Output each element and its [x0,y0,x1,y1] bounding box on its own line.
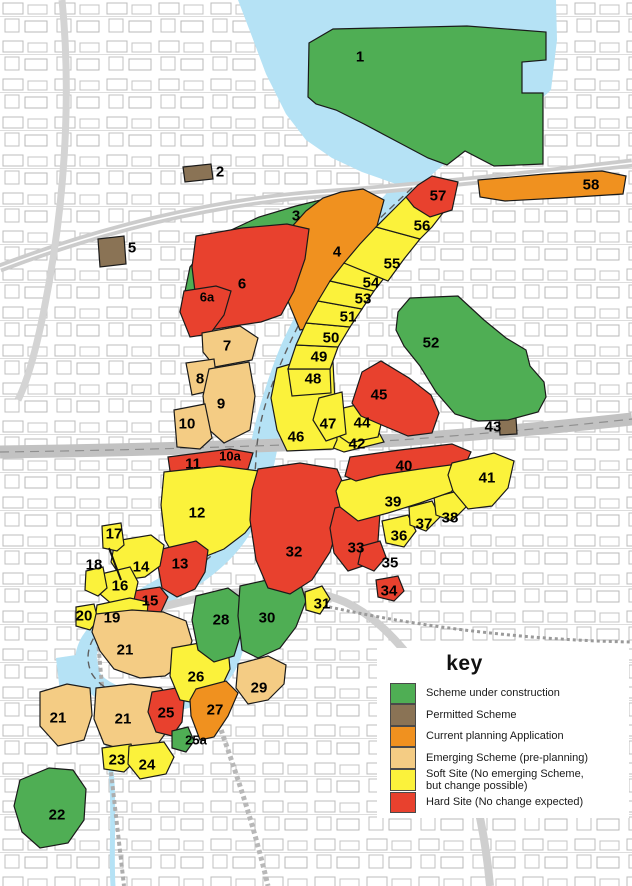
site-label-21: 21 [50,710,67,727]
site-label-4: 4 [333,244,342,261]
site-label-44: 44 [354,415,371,432]
site-label-43: 43 [485,419,502,436]
site-label-5: 5 [128,240,136,257]
site-label-45: 45 [371,387,388,404]
site-label-40: 40 [396,458,413,475]
key-swatch-hard [390,792,416,814]
site-label-6: 6 [238,276,246,293]
key-label-permitted: Permitted Scheme [426,710,516,722]
key-label-current-application: Current planning Application [426,731,564,743]
site-label-42: 42 [349,436,366,453]
site-label-49: 49 [311,349,328,366]
key-label-hard: Hard Site (No change expected) [426,797,583,809]
site-label-53: 53 [355,291,372,308]
site-label-2: 2 [216,164,224,181]
site-label-29: 29 [251,680,268,697]
site-label-21: 21 [117,642,134,659]
site-label-8: 8 [196,371,204,388]
key-item-soft: Soft Site (No emerging Scheme,but change… [390,769,629,792]
key-item-under-construction: Scheme under construction [390,683,629,705]
site-label-51: 51 [340,309,357,326]
site-region-5 [98,236,126,267]
site-label-28: 28 [213,612,230,629]
site-label-3: 3 [292,208,300,225]
key-label-under-construction: Scheme under construction [426,688,560,700]
site-label-1: 1 [356,49,364,66]
site-label-50: 50 [323,330,340,347]
site-label-14: 14 [133,559,150,576]
site-label-21: 21 [115,711,132,728]
site-label-48: 48 [305,371,322,388]
site-label-31: 31 [314,596,331,613]
site-label-30: 30 [259,610,276,627]
planning-map: 1234566a7891010a111213141516171819202121… [0,0,632,886]
key-label-line: Current planning Application [426,731,564,743]
site-label-52: 52 [423,335,440,352]
site-label-39: 39 [385,494,402,511]
site-label-19: 19 [104,610,121,627]
site-label-37: 37 [416,516,433,533]
key-item-emerging: Emerging Scheme (pre-planning) [390,748,629,770]
site-label-18: 18 [86,557,103,574]
key-item-hard: Hard Site (No change expected) [390,792,629,814]
key-label-line: Scheme under construction [426,688,560,700]
site-label-10: 10 [179,416,196,433]
site-label-32: 32 [286,544,303,561]
site-label-25: 25 [158,705,175,722]
map-key: key Scheme under constructionPermitted S… [377,648,629,818]
site-label-17: 17 [106,526,123,543]
key-label-line: Soft Site (No emerging Scheme, [426,769,584,781]
site-label-55: 55 [384,256,401,273]
site-label-22: 22 [49,807,66,824]
site-region-2 [183,164,213,182]
key-swatch-current-application [390,726,416,748]
site-label-25a: 25a [185,733,207,748]
key-label-line: but change possible) [426,781,584,793]
key-label-emerging: Emerging Scheme (pre-planning) [426,753,588,765]
key-label-line: Permitted Scheme [426,710,516,722]
site-label-41: 41 [479,470,496,487]
site-label-7: 7 [223,338,231,355]
key-items: Scheme under constructionPermitted Schem… [390,683,629,814]
key-label-line: Emerging Scheme (pre-planning) [426,753,588,765]
site-label-6a: 6a [200,290,215,305]
key-item-permitted: Permitted Scheme [390,705,629,727]
site-label-35: 35 [382,555,399,572]
site-label-12: 12 [189,505,206,522]
site-label-15: 15 [142,593,159,610]
site-label-36: 36 [391,528,408,545]
key-swatch-under-construction [390,683,416,705]
site-label-10a: 10a [219,449,241,464]
site-label-34: 34 [381,583,398,600]
site-label-56: 56 [414,218,431,235]
site-label-57: 57 [430,188,447,205]
site-label-38: 38 [442,510,459,527]
key-label-soft: Soft Site (No emerging Scheme,but change… [426,769,584,792]
key-swatch-permitted [390,704,416,726]
site-label-9: 9 [217,396,225,413]
site-label-27: 27 [207,702,224,719]
key-swatch-soft [390,769,416,791]
key-swatch-emerging [390,747,416,769]
site-label-33: 33 [348,540,365,557]
site-label-46: 46 [288,429,305,446]
site-label-13: 13 [172,556,189,573]
site-label-24: 24 [139,757,156,774]
key-title: key [390,652,629,676]
site-label-26: 26 [188,669,205,686]
site-label-47: 47 [320,416,337,433]
site-label-11: 11 [185,456,201,473]
site-label-54: 54 [363,275,380,292]
key-item-current-application: Current planning Application [390,726,629,748]
site-label-23: 23 [109,752,126,769]
site-label-20: 20 [76,608,93,625]
site-label-58: 58 [583,177,600,194]
site-label-16: 16 [112,578,129,595]
key-label-line: Hard Site (No change expected) [426,797,583,809]
